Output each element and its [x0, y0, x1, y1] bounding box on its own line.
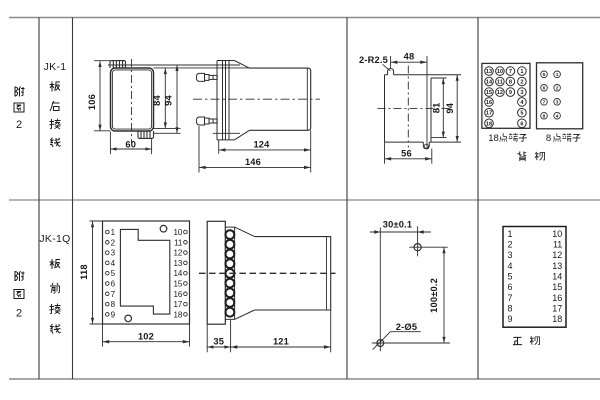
- svg-text:84: 84: [152, 95, 162, 106]
- svg-text:94: 94: [445, 102, 455, 113]
- svg-text:56: 56: [401, 148, 412, 158]
- svg-text:6: 6: [111, 280, 116, 289]
- svg-text:13: 13: [552, 261, 562, 271]
- svg-text:2: 2: [16, 119, 22, 131]
- svg-text:8: 8: [509, 80, 512, 86]
- svg-text:60: 60: [125, 140, 136, 150]
- svg-text:15: 15: [173, 280, 182, 289]
- svg-text:16: 16: [173, 290, 182, 299]
- svg-text:7: 7: [508, 293, 513, 303]
- svg-text:2-R2.5: 2-R2.5: [359, 55, 388, 65]
- svg-text:JK-1: JK-1: [44, 61, 67, 73]
- svg-text:13: 13: [486, 69, 492, 75]
- svg-text:10: 10: [552, 229, 562, 239]
- svg-text:2: 2: [16, 308, 22, 320]
- svg-text:8: 8: [543, 114, 546, 120]
- svg-text:81: 81: [432, 102, 442, 113]
- svg-text:146: 146: [245, 157, 261, 167]
- svg-text:9: 9: [111, 310, 116, 319]
- svg-text:13: 13: [173, 259, 182, 268]
- svg-text:8: 8: [508, 304, 513, 314]
- svg-text:16: 16: [552, 293, 562, 303]
- svg-text:11: 11: [497, 80, 503, 86]
- svg-text:5: 5: [543, 72, 546, 78]
- svg-text:118: 118: [79, 264, 89, 280]
- svg-text:4: 4: [508, 261, 513, 271]
- svg-text:9: 9: [509, 90, 512, 96]
- svg-text:3: 3: [520, 90, 523, 96]
- svg-text:2: 2: [111, 238, 116, 247]
- svg-text:14: 14: [173, 269, 182, 278]
- svg-text:3: 3: [556, 100, 559, 106]
- svg-text:11: 11: [553, 240, 562, 250]
- svg-text:102: 102: [138, 332, 154, 342]
- svg-text:5: 5: [520, 111, 523, 117]
- svg-text:35: 35: [213, 336, 224, 346]
- svg-text:18: 18: [486, 121, 492, 127]
- svg-text:11: 11: [174, 238, 183, 247]
- svg-text:17: 17: [173, 300, 182, 309]
- svg-text:10: 10: [497, 69, 503, 75]
- svg-text:2: 2: [508, 240, 513, 250]
- svg-text:12: 12: [497, 90, 503, 96]
- svg-text:94: 94: [164, 95, 174, 106]
- svg-text:18: 18: [488, 133, 499, 144]
- svg-text:4: 4: [520, 100, 524, 106]
- svg-text:12: 12: [552, 250, 562, 260]
- svg-text:7: 7: [509, 69, 512, 75]
- svg-text:JK-1Q: JK-1Q: [39, 233, 70, 245]
- svg-text:6: 6: [543, 86, 546, 92]
- svg-text:4: 4: [111, 259, 116, 268]
- svg-text:6: 6: [520, 121, 523, 127]
- svg-text:14: 14: [552, 272, 562, 282]
- svg-text:14: 14: [486, 80, 493, 86]
- svg-text:2: 2: [520, 80, 523, 86]
- svg-text:2: 2: [556, 86, 559, 92]
- svg-text:10: 10: [173, 228, 182, 237]
- svg-text:7: 7: [543, 100, 546, 106]
- svg-text:7: 7: [111, 290, 116, 299]
- svg-text:106: 106: [87, 94, 97, 110]
- svg-text:48: 48: [404, 52, 415, 62]
- svg-text:1: 1: [508, 229, 513, 239]
- svg-text:17: 17: [486, 111, 492, 117]
- svg-text:121: 121: [273, 336, 289, 346]
- svg-text:18: 18: [173, 310, 182, 319]
- svg-text:2-Ø5: 2-Ø5: [396, 322, 417, 332]
- svg-text:18: 18: [552, 314, 562, 324]
- svg-text:4: 4: [556, 114, 559, 120]
- svg-text:5: 5: [111, 269, 116, 278]
- svg-text:6: 6: [508, 282, 513, 292]
- svg-text:124: 124: [253, 139, 270, 149]
- svg-text:8: 8: [111, 300, 116, 309]
- svg-text:30±0.1: 30±0.1: [383, 220, 413, 230]
- svg-text:100±0.2: 100±0.2: [429, 278, 439, 313]
- svg-text:15: 15: [552, 282, 562, 292]
- svg-text:8: 8: [546, 133, 551, 144]
- svg-text:1: 1: [111, 228, 116, 237]
- svg-text:3: 3: [111, 249, 116, 258]
- svg-text:17: 17: [552, 304, 562, 314]
- svg-text:12: 12: [173, 249, 182, 258]
- svg-text:16: 16: [486, 100, 492, 106]
- svg-text:1: 1: [556, 72, 559, 78]
- svg-text:15: 15: [486, 90, 492, 96]
- svg-text:5: 5: [508, 272, 513, 282]
- svg-text:3: 3: [508, 250, 513, 260]
- svg-text:1: 1: [520, 69, 523, 75]
- svg-text:9: 9: [508, 314, 513, 324]
